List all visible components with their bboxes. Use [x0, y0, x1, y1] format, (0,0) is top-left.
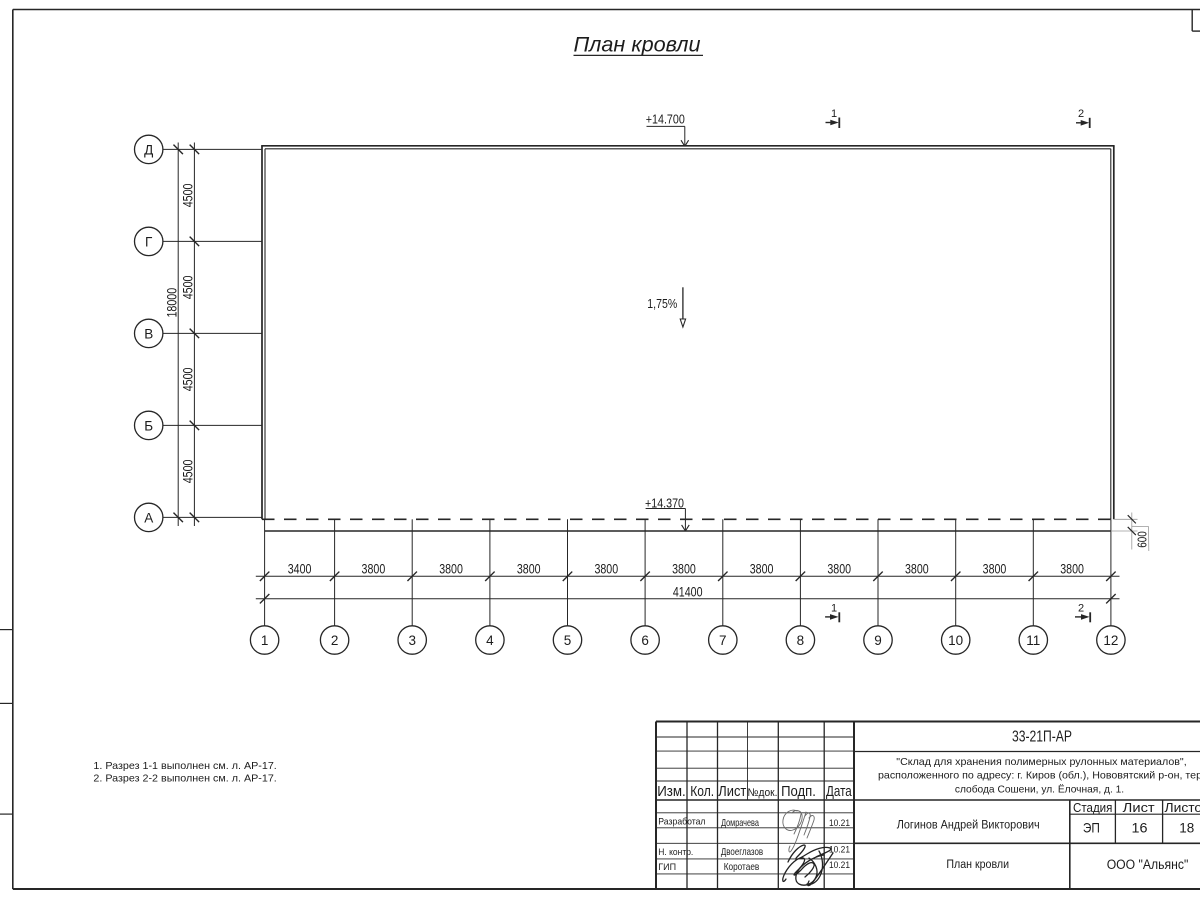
- svg-text:Стадия: Стадия: [1073, 801, 1112, 815]
- svg-text:8: 8: [797, 633, 805, 648]
- svg-text:Дата: Дата: [826, 783, 852, 800]
- svg-text:12: 12: [1103, 633, 1118, 648]
- svg-text:расположенного по адресу: г. К: расположенного по адресу: г. Киров (обл.…: [878, 770, 1200, 782]
- svg-text:3800: 3800: [827, 562, 851, 577]
- svg-text:3800: 3800: [750, 562, 774, 577]
- svg-text:ГИП: ГИП: [658, 862, 676, 873]
- svg-text:2. Разрез 2-2 выполнен см. л.: 2. Разрез 2-2 выполнен см. л. АР-17.: [93, 772, 276, 784]
- svg-text:1: 1: [831, 603, 837, 615]
- svg-text:Изм.: Изм.: [657, 783, 686, 800]
- svg-text:9: 9: [874, 633, 882, 648]
- svg-text:слобода Сошени, ул. Ёлочная, д: слобода Сошени, ул. Ёлочная, д. 1.: [955, 784, 1124, 796]
- svg-text:Разработал: Разработал: [658, 817, 705, 828]
- svg-text:Двоеглазов: Двоеглазов: [721, 846, 764, 858]
- svg-text:5: 5: [564, 633, 572, 648]
- svg-text:3800: 3800: [594, 562, 618, 577]
- svg-text:11: 11: [1026, 633, 1040, 648]
- svg-text:А: А: [144, 510, 153, 525]
- svg-text:Листов: Листов: [1165, 801, 1200, 815]
- svg-text:18: 18: [1179, 820, 1194, 836]
- svg-text:41400: 41400: [673, 584, 703, 599]
- svg-text:18000: 18000: [164, 288, 179, 318]
- svg-text:План кровли: План кровли: [574, 32, 701, 56]
- svg-text:3400: 3400: [288, 562, 312, 577]
- svg-text:33-21П-АР: 33-21П-АР: [1012, 728, 1072, 745]
- svg-text:3800: 3800: [1060, 562, 1084, 577]
- svg-text:Лист: Лист: [1123, 801, 1155, 815]
- svg-text:Подп.: Подп.: [781, 783, 816, 800]
- svg-text:1: 1: [261, 633, 269, 648]
- svg-text:4500: 4500: [180, 184, 195, 208]
- svg-text:1: 1: [831, 108, 837, 120]
- svg-text:3800: 3800: [362, 562, 386, 577]
- svg-text:2: 2: [1078, 108, 1084, 120]
- svg-text:№док.: №док.: [748, 787, 778, 799]
- svg-text:ООО "Альянс": ООО "Альянс": [1107, 857, 1189, 872]
- svg-text:Г: Г: [145, 234, 153, 249]
- svg-text:1,75%: 1,75%: [647, 297, 677, 311]
- svg-text:7: 7: [719, 633, 727, 648]
- svg-text:Лист: Лист: [718, 783, 746, 800]
- svg-text:Кол.: Кол.: [690, 783, 714, 800]
- svg-text:4: 4: [486, 633, 494, 648]
- svg-text:3800: 3800: [983, 562, 1007, 577]
- svg-text:3800: 3800: [439, 562, 463, 577]
- svg-text:В: В: [144, 326, 153, 341]
- svg-text:+14.700: +14.700: [646, 112, 685, 127]
- svg-text:1. Разрез 1-1 выполнен см. л.: 1. Разрез 1-1 выполнен см. л. АР-17.: [93, 760, 276, 772]
- svg-text:10: 10: [948, 633, 963, 648]
- svg-text:Логинов Андрей Викторович: Логинов Андрей Викторович: [897, 820, 1040, 832]
- svg-text:Б: Б: [144, 418, 153, 433]
- svg-text:ЭП: ЭП: [1083, 820, 1100, 836]
- svg-text:Коротаев: Коротаев: [724, 861, 760, 873]
- svg-text:2: 2: [331, 633, 339, 648]
- svg-text:3800: 3800: [905, 562, 929, 577]
- svg-text:Д: Д: [144, 142, 153, 157]
- svg-text:4500: 4500: [180, 368, 195, 392]
- svg-text:Домрачева: Домрачева: [721, 817, 759, 829]
- svg-text:План кровли: План кровли: [946, 859, 1009, 871]
- svg-text:3800: 3800: [517, 562, 541, 577]
- svg-text:2: 2: [1078, 602, 1084, 614]
- svg-text:3: 3: [408, 633, 416, 648]
- svg-text:10.21: 10.21: [829, 860, 850, 871]
- svg-text:3800: 3800: [672, 562, 696, 577]
- svg-text:6: 6: [641, 633, 649, 648]
- svg-text:16: 16: [1132, 820, 1148, 836]
- svg-text:Н. контр.: Н. контр.: [658, 847, 693, 858]
- svg-text:600: 600: [1135, 531, 1149, 548]
- svg-text:"Склад для хранения полимерных: "Склад для хранения полимерных рулонных …: [896, 756, 1186, 768]
- svg-text:4500: 4500: [180, 276, 195, 300]
- svg-text:10.21: 10.21: [829, 818, 850, 829]
- svg-text:4500: 4500: [180, 460, 195, 484]
